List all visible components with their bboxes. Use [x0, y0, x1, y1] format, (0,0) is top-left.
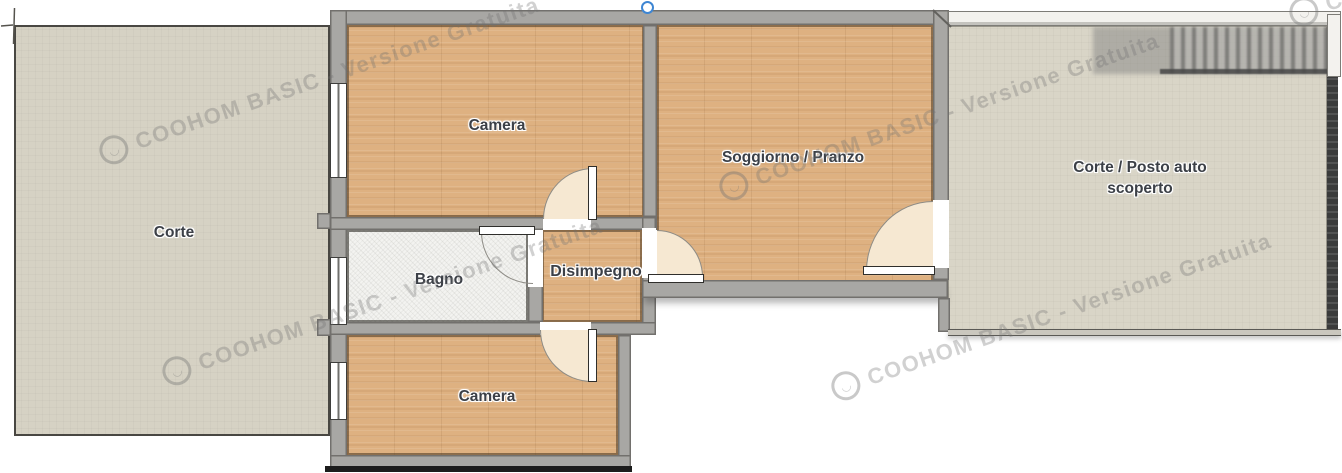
floorplan-canvas: Corte Camera Soggiorno / Pranzo Bagno Di… [0, 0, 1342, 473]
label-corte-right: Corte / Posto auto scoperto [1073, 157, 1206, 199]
fence-right-upper[interactable] [1327, 14, 1341, 77]
door-leaf-bagno[interactable] [479, 226, 535, 235]
door-leaf-camera-top[interactable] [588, 166, 597, 220]
door-opening-disimpegno-soggiorno [642, 228, 656, 278]
wall-camera-soggiorno[interactable] [643, 25, 657, 217]
door-opening-soggiorno-corte [933, 200, 949, 268]
wall-camera2-east[interactable] [618, 335, 631, 457]
coohom-logo-icon: ◡ [827, 367, 864, 404]
label-corte-right-line2: scoperto [1073, 178, 1206, 199]
label-disimpegno: Disimpegno [550, 263, 642, 281]
window-bagno[interactable] [330, 257, 347, 325]
window-camera-top[interactable] [330, 83, 347, 178]
door-leaf-disimpegno[interactable] [648, 274, 704, 283]
gate-right-dark[interactable] [1327, 77, 1338, 332]
carport-slats [1170, 27, 1332, 73]
wall-node-handle-icon[interactable] [641, 1, 654, 14]
wall-top[interactable] [330, 10, 948, 25]
label-camera-bottom: Camera [459, 388, 516, 406]
carport-edge-line [1160, 69, 1332, 74]
fence-bottom-right-court[interactable] [948, 329, 1341, 336]
door-leaf-camera-bottom[interactable] [588, 329, 597, 382]
label-soggiorno: Soggiorno / Pranzo [722, 149, 864, 167]
label-corte-left: Corte [154, 224, 194, 242]
wall-bagno-camera2[interactable] [330, 322, 656, 335]
fence-bottom-dark[interactable] [325, 466, 632, 472]
wall-notch-upper [317, 213, 331, 229]
wall-court-stub [938, 298, 950, 332]
label-corte-right-line1: Corte / Posto auto [1073, 157, 1206, 178]
door-leaf-soggiorno[interactable] [863, 266, 935, 275]
label-camera-top: Camera [469, 117, 526, 135]
window-camera-bottom[interactable] [330, 362, 347, 420]
label-bagno: Bagno [415, 271, 463, 289]
wall-notch-lower [317, 319, 331, 336]
fence-top-right-court[interactable] [948, 11, 1341, 26]
